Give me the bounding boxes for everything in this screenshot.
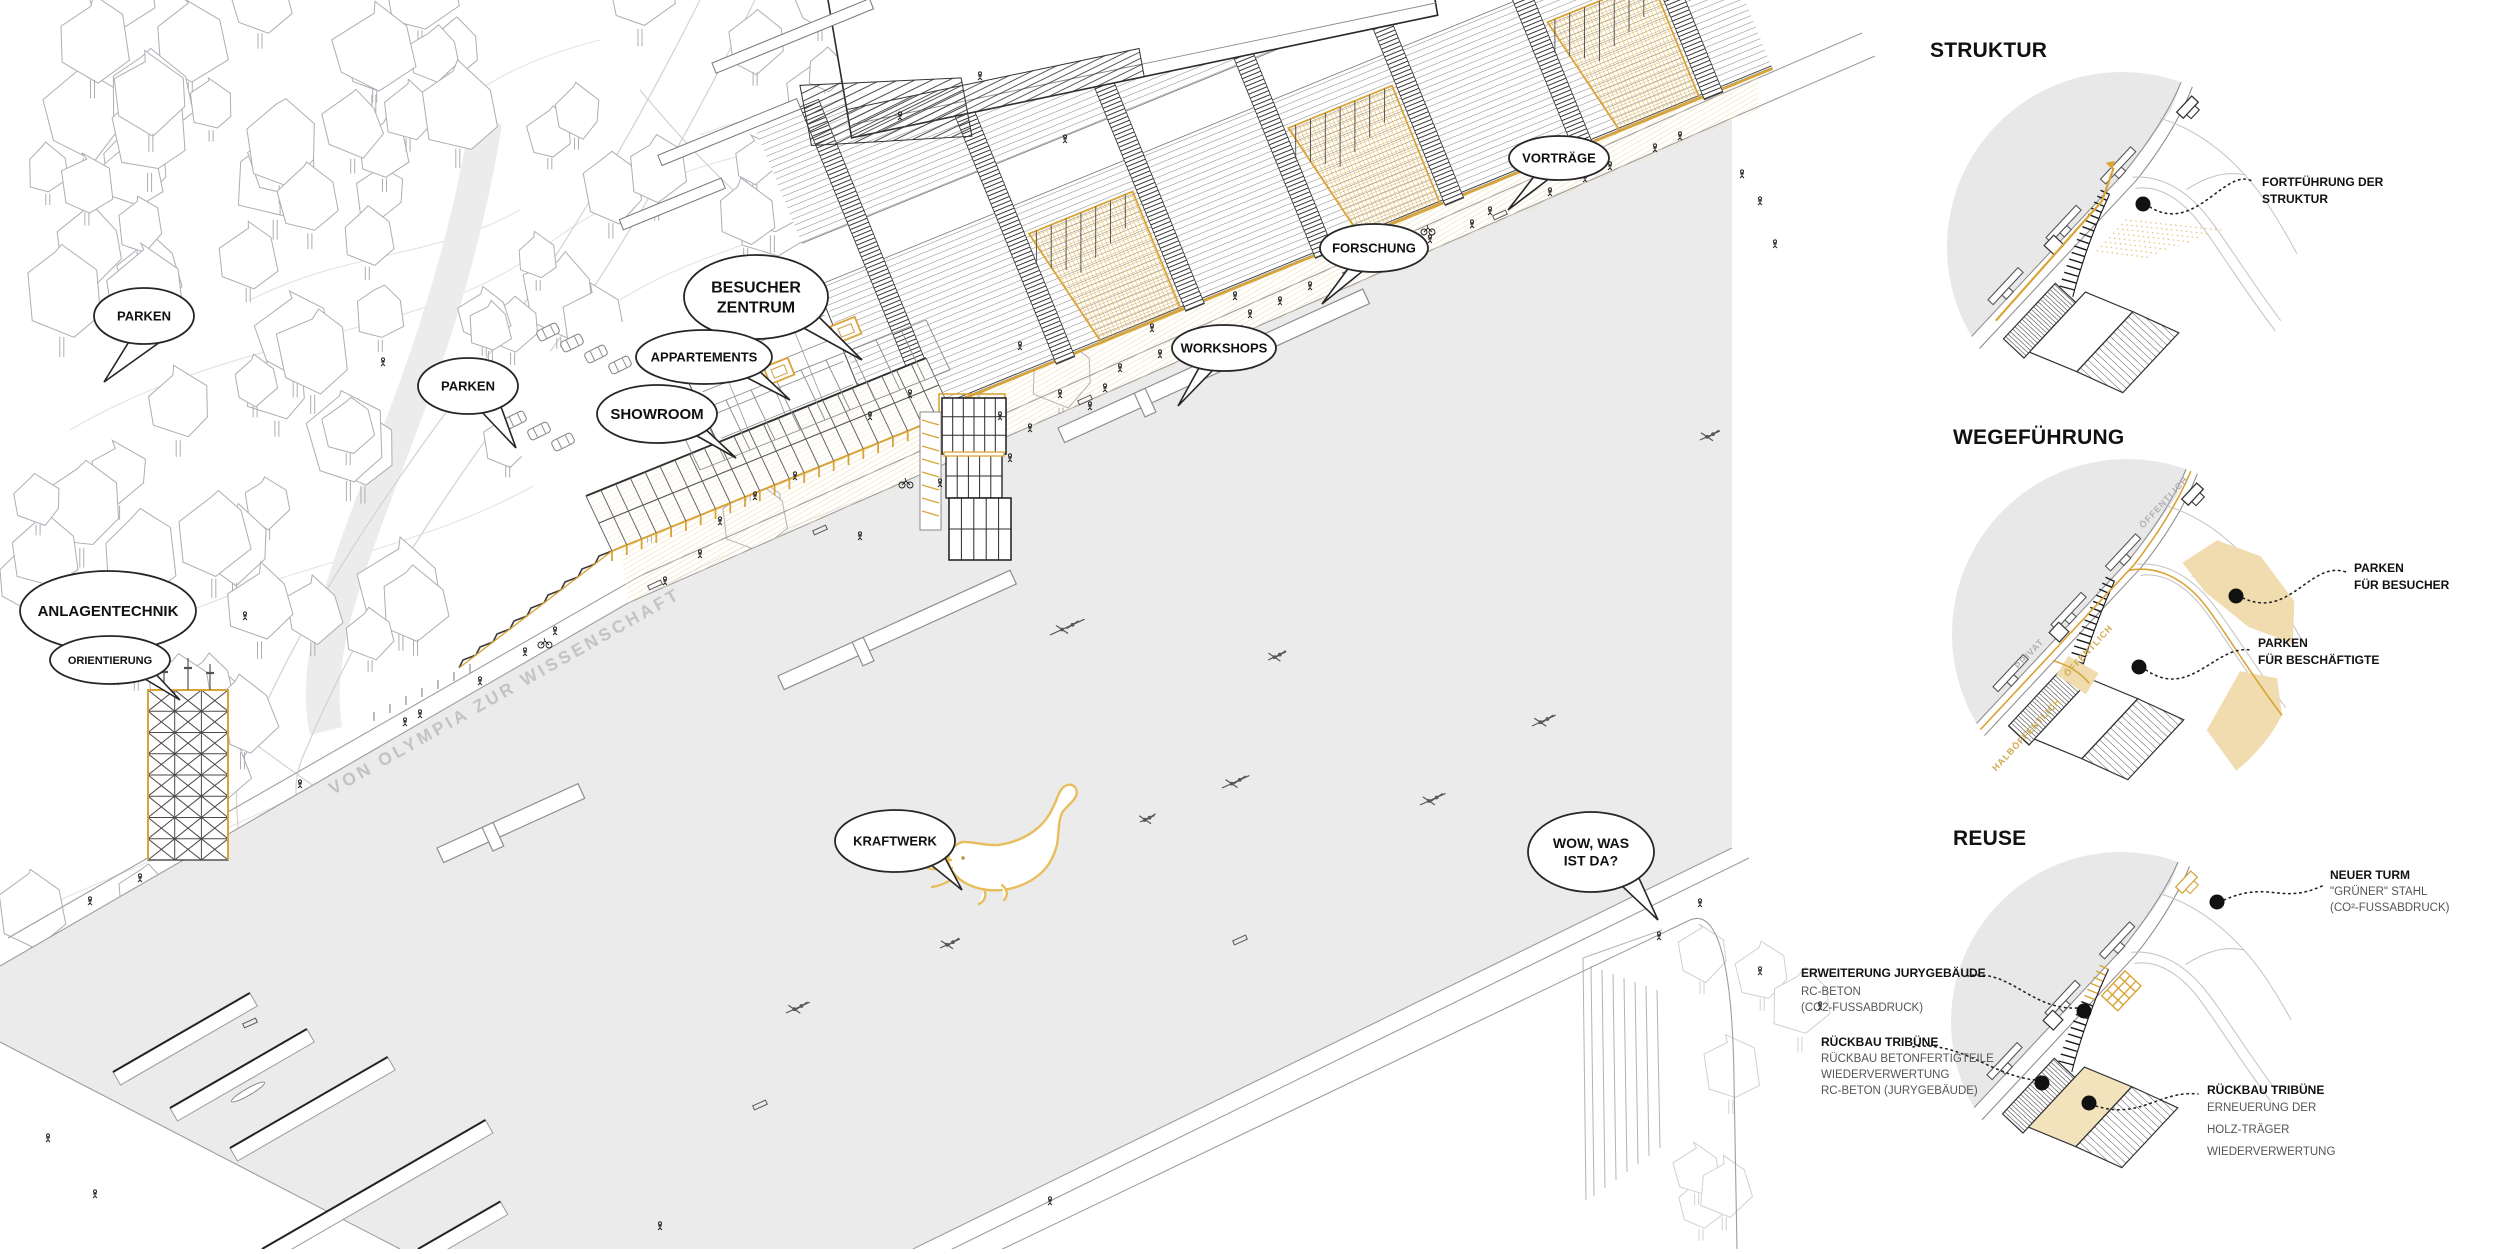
svg-text:FORTFÜHRUNG DER: FORTFÜHRUNG DER xyxy=(2262,174,2384,189)
svg-text:STRUKTUR: STRUKTUR xyxy=(2262,192,2328,206)
svg-text:PARKEN: PARKEN xyxy=(441,379,495,394)
svg-text:(CO2-FUSSABDRUCK): (CO2-FUSSABDRUCK) xyxy=(1801,1002,1923,1014)
svg-text:ORIENTIERUNG: ORIENTIERUNG xyxy=(68,655,152,667)
svg-text:PARKEN: PARKEN xyxy=(117,309,171,324)
svg-text:ANLAGENTECHNIK: ANLAGENTECHNIK xyxy=(38,603,179,620)
svg-text:(CO²-FUSSABDRUCK): (CO²-FUSSABDRUCK) xyxy=(2330,902,2450,914)
svg-text:FÜR BESUCHER: FÜR BESUCHER xyxy=(2354,577,2450,592)
svg-text:NEUER TURM: NEUER TURM xyxy=(2330,868,2410,882)
svg-text:WIEDERVERWERTUNG: WIEDERVERWERTUNG xyxy=(1821,1069,1949,1081)
svg-text:APPARTEMENTS: APPARTEMENTS xyxy=(651,350,758,365)
svg-text:RÜCKBAU BETONFERTIGTEILE: RÜCKBAU BETONFERTIGTEILE xyxy=(1821,1053,1994,1065)
svg-text:ZENTRUM: ZENTRUM xyxy=(717,300,795,317)
svg-text:WOW, WAS: WOW, WAS xyxy=(1553,835,1629,851)
svg-text:"GRÜNER" STAHL: "GRÜNER" STAHL xyxy=(2330,886,2428,898)
svg-text:VORTRÄGE: VORTRÄGE xyxy=(1522,151,1596,166)
svg-text:RÜCKBAU TRIBÜNE: RÜCKBAU TRIBÜNE xyxy=(1821,1034,1938,1049)
svg-text:IST DA?: IST DA? xyxy=(1564,853,1618,869)
svg-text:ERNEUERUNG DER: ERNEUERUNG DER xyxy=(2207,1102,2316,1114)
svg-text:PARKEN: PARKEN xyxy=(2354,561,2404,575)
svg-text:STRUKTUR: STRUKTUR xyxy=(1930,39,2047,62)
svg-text:KRAFTWERK: KRAFTWERK xyxy=(853,834,937,849)
svg-text:RC-BETON (JURYGEBÄUDE): RC-BETON (JURYGEBÄUDE) xyxy=(1821,1085,1978,1097)
svg-text:WORKSHOPS: WORKSHOPS xyxy=(1181,341,1268,356)
svg-text:RC-BETON: RC-BETON xyxy=(1801,986,1861,998)
svg-text:HOLZ-TRÄGER: HOLZ-TRÄGER xyxy=(2207,1124,2289,1136)
svg-text:RÜCKBAU TRIBÜNE: RÜCKBAU TRIBÜNE xyxy=(2207,1082,2324,1097)
svg-text:FORSCHUNG: FORSCHUNG xyxy=(1332,241,1416,256)
svg-text:BESUCHER: BESUCHER xyxy=(711,280,801,297)
svg-text:REUSE: REUSE xyxy=(1953,827,2026,850)
svg-text:FÜR BESCHÄFTIGTE: FÜR BESCHÄFTIGTE xyxy=(2258,652,2379,667)
svg-text:WEGEFÜHRUNG: WEGEFÜHRUNG xyxy=(1953,426,2124,449)
svg-text:ERWEITERUNG JURYGEBÄUDE: ERWEITERUNG JURYGEBÄUDE xyxy=(1801,965,1986,980)
svg-text:WIEDERVERWERTUNG: WIEDERVERWERTUNG xyxy=(2207,1146,2335,1158)
svg-text:SHOWROOM: SHOWROOM xyxy=(610,406,703,423)
svg-text:PARKEN: PARKEN xyxy=(2258,636,2308,650)
